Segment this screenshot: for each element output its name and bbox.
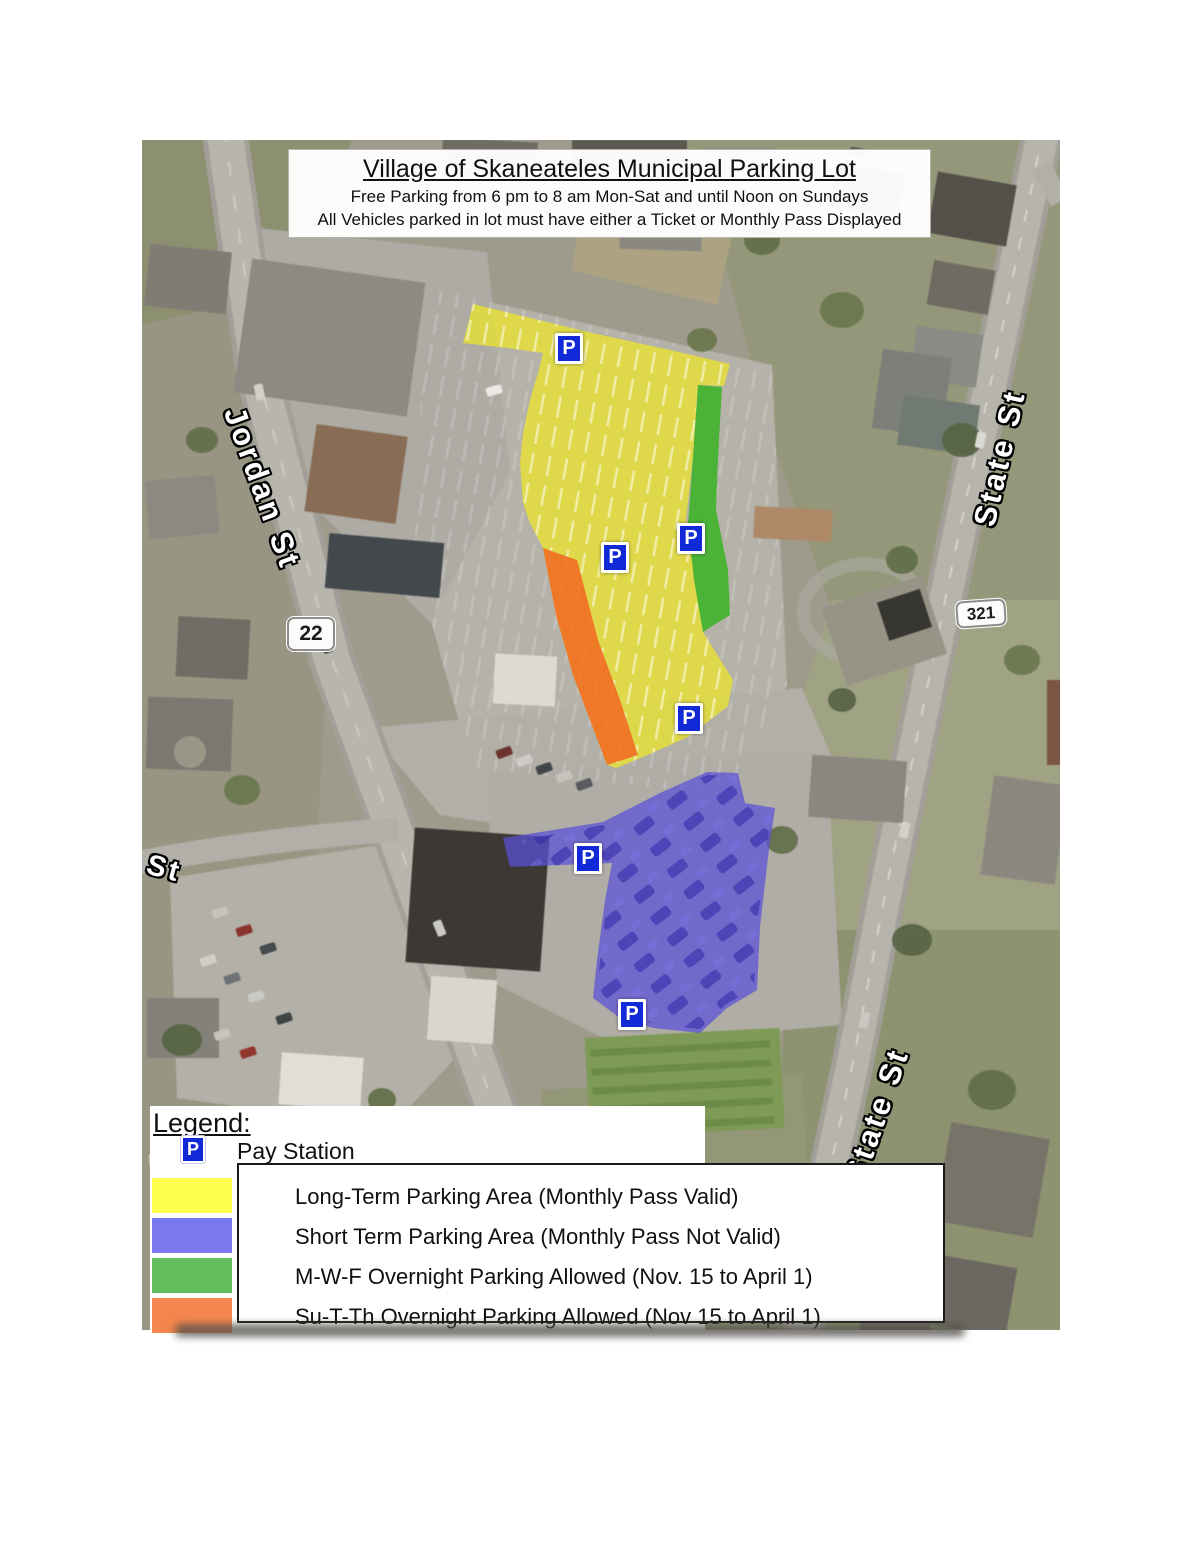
pay-station-marker-2: P xyxy=(601,542,629,573)
title-box: Village of Skaneateles Municipal Parking… xyxy=(288,149,931,238)
legend-pay-station-label: Pay Station xyxy=(237,1138,355,1165)
pay-station-marker-1: P xyxy=(555,333,583,364)
route-22-shield: 22 xyxy=(287,617,335,651)
pay-station-marker-6: P xyxy=(618,999,646,1030)
photo-edge-artifact xyxy=(175,1324,965,1337)
pay-station-marker-5: P xyxy=(574,843,602,874)
legend-items-box: Long-Term Parking Area (Monthly Pass Val… xyxy=(237,1163,945,1323)
legend-item-label: Short Term Parking Area (Monthly Pass No… xyxy=(295,1224,781,1250)
pay-station-marker-3: P xyxy=(677,523,705,554)
legend-item-long-term: Long-Term Parking Area (Monthly Pass Val… xyxy=(239,1177,943,1217)
legend-item-label: Long-Term Parking Area (Monthly Pass Val… xyxy=(295,1184,738,1210)
route-321-shield: 321 xyxy=(955,598,1007,628)
legend-heading: Legend: xyxy=(153,1108,251,1139)
page: Jordan St State St State St ll St 22 321… xyxy=(0,0,1200,1553)
legend-pay-station-icon: P xyxy=(181,1136,205,1163)
legend-swatch-short-term xyxy=(152,1218,232,1253)
pay-station-marker-4: P xyxy=(675,703,703,734)
legend-item-mwf: M-W-F Overnight Parking Allowed (Nov. 15… xyxy=(239,1257,943,1297)
map-title: Village of Skaneateles Municipal Parking… xyxy=(289,155,930,184)
legend-swatch-long-term xyxy=(152,1178,232,1213)
subtitle-free-parking: Free Parking from 6 pm to 8 am Mon-Sat a… xyxy=(289,187,930,207)
subtitle-ticket-required: All Vehicles parked in lot must have eit… xyxy=(289,210,930,230)
legend-item-label: M-W-F Overnight Parking Allowed (Nov. 15… xyxy=(295,1264,813,1290)
legend-item-short-term: Short Term Parking Area (Monthly Pass No… xyxy=(239,1217,943,1257)
legend-swatch-mwf xyxy=(152,1258,232,1293)
